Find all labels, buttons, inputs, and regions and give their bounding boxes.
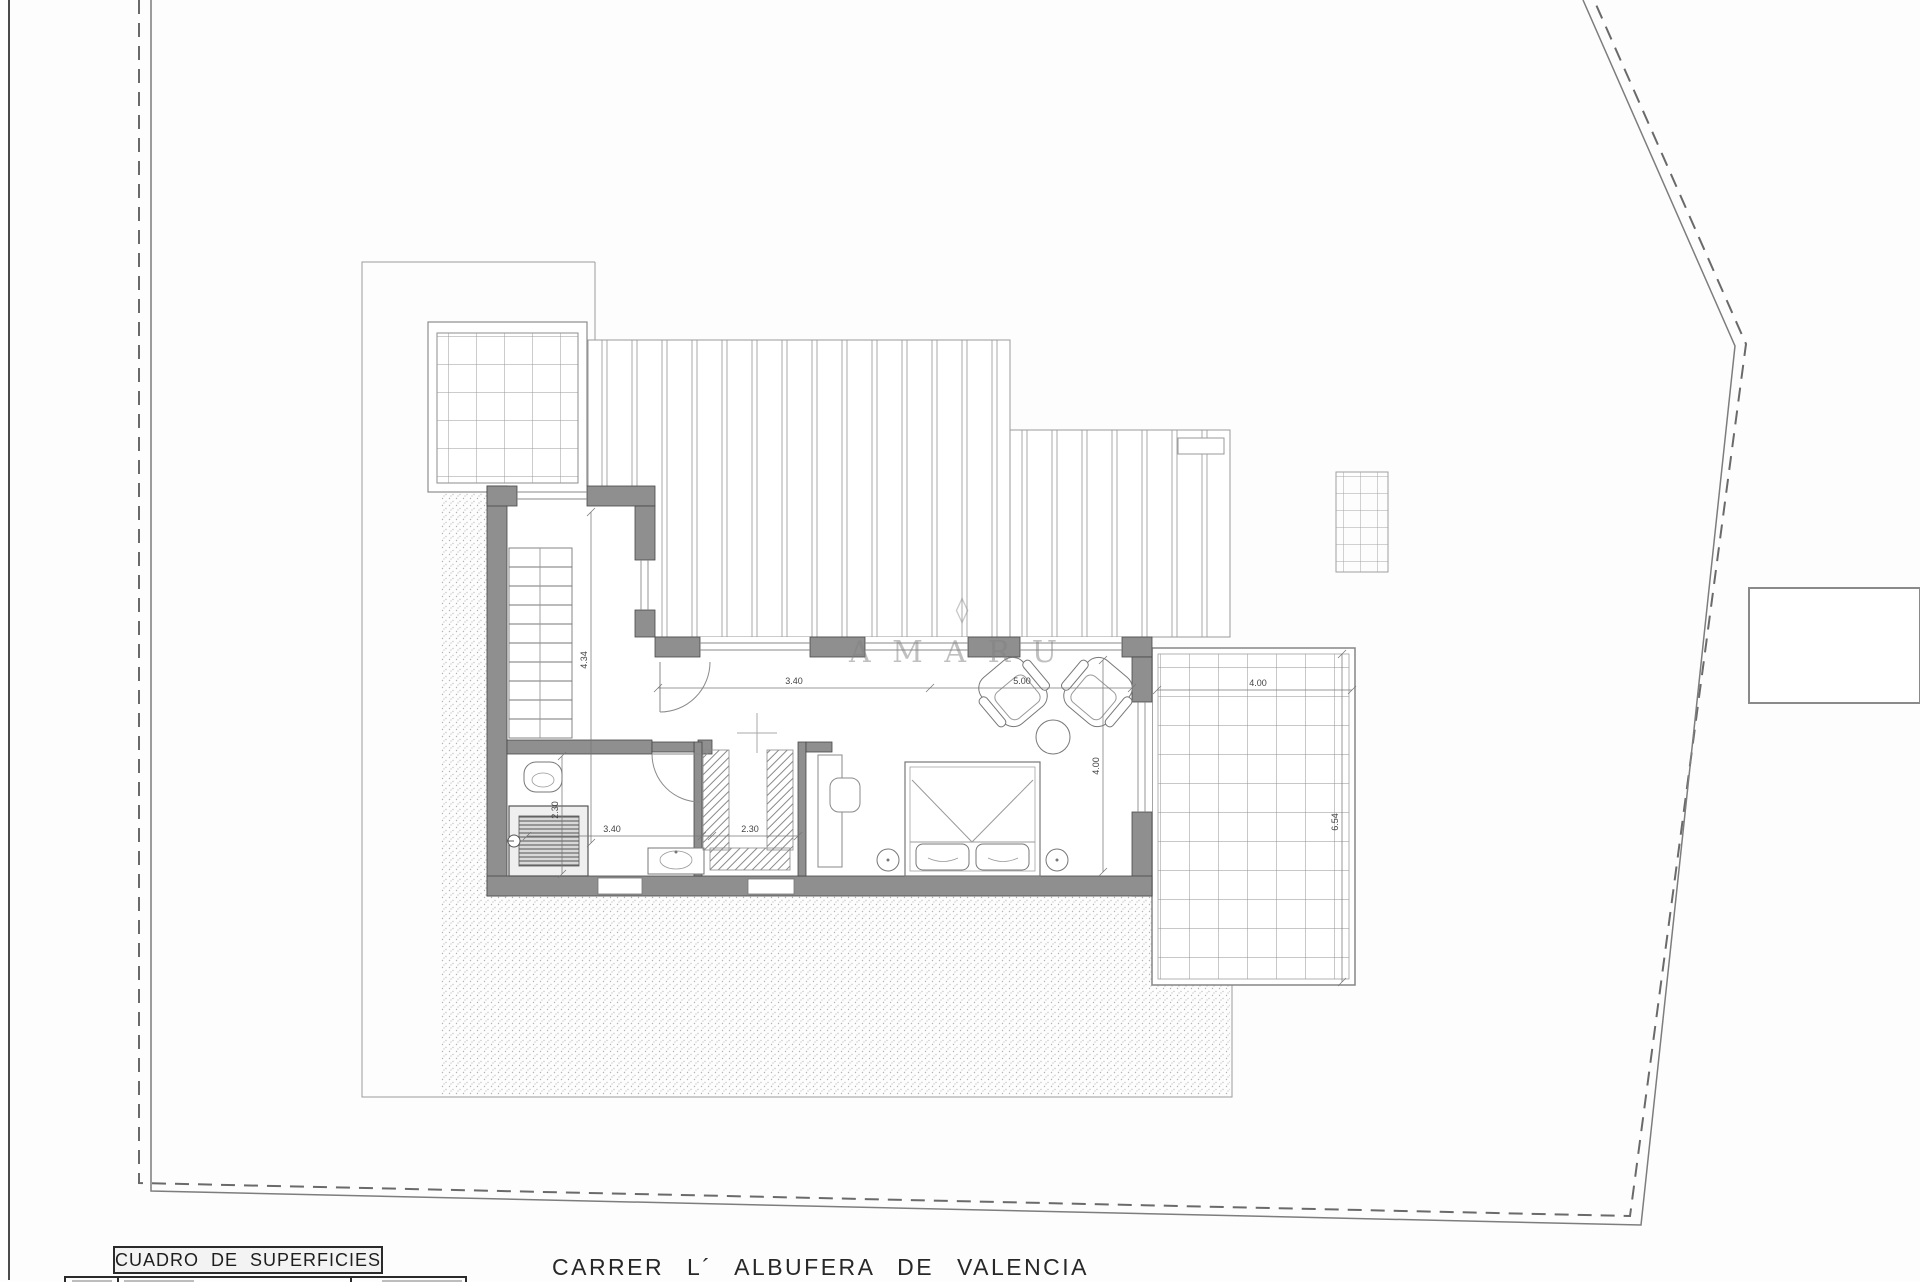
wall-bedroom-top-d [1122, 637, 1152, 657]
ground-strip-left [440, 486, 487, 896]
ground-apron-bottom [440, 896, 1230, 1095]
dim-bedroom-depth: 4.00 [1091, 757, 1101, 775]
wall-bottom [487, 876, 1152, 896]
terrace-grid [1158, 654, 1349, 979]
wall-hall-top-b [587, 486, 655, 506]
wardrobe-bottom [710, 848, 790, 870]
surface-table [64, 1276, 467, 1282]
terrace-right [1152, 648, 1355, 985]
bed [905, 762, 1040, 876]
staircase [509, 548, 572, 738]
pergola-grid [437, 333, 578, 483]
wall-left [487, 486, 507, 896]
bottom-wall-inset-a [598, 878, 642, 894]
side-table [1036, 720, 1070, 754]
pillow-left [916, 844, 969, 870]
dim-bathroom-width: 3.40 [603, 824, 621, 834]
washbasin [648, 848, 704, 874]
dim-living-width: 5.00 [1013, 676, 1031, 686]
surface-table-border [64, 1278, 66, 1282]
wardrobe-right [767, 750, 793, 850]
deck-stripes [588, 340, 1230, 637]
dim-corridor-width: 3.40 [785, 676, 803, 686]
dim-closet-width: 2.30 [741, 824, 759, 834]
floor-plan-drawing: 3.40 5.00 4.00 4.34 3.40 2.30 2.30 4.00 … [0, 0, 1920, 1280]
wall-bathroom-top [507, 740, 652, 754]
wall-bedroom-top-a [655, 637, 700, 657]
deck-area-right [1010, 430, 1230, 637]
desk-chair [830, 778, 860, 812]
watermark-emblem-icon: ◊ [956, 595, 969, 625]
surface-table-border [350, 1278, 352, 1282]
dim-terrace-width: 4.00 [1249, 678, 1267, 688]
wall-closet-right [798, 742, 806, 876]
trellis-small [1336, 472, 1388, 572]
surface-table-border [117, 1278, 119, 1282]
surface-table-border [465, 1278, 467, 1282]
wall-closet-header-a [652, 742, 694, 752]
street-name: CARRER L´ ALBUFERA DE VALENCIA [552, 1254, 1089, 1281]
dim-stair-hall: 4.34 [579, 651, 589, 669]
surface-table-title: CUADRO DE SUPERFICIES [113, 1246, 383, 1274]
wall-hall-right-b [635, 610, 655, 637]
deck-step [1178, 438, 1224, 454]
wall-hall-top-a [487, 486, 517, 506]
wall-right-a [1132, 657, 1152, 702]
toilet [524, 762, 562, 792]
dim-terrace-depth: 6.54 [1330, 813, 1340, 831]
pillow-right [976, 844, 1029, 870]
bottom-wall-inset-b [748, 879, 794, 894]
wall-closet-header-b [806, 742, 832, 752]
floor-plan-sheet: 3.40 5.00 4.00 4.34 3.40 2.30 2.30 4.00 … [0, 0, 1920, 1280]
neighbor-building [1749, 588, 1920, 703]
watermark-text: A M A R U [848, 635, 1063, 670]
wardrobe-left [703, 750, 729, 850]
wall-hall-right-a [635, 506, 655, 560]
dim-bathroom-depth: 2.30 [550, 801, 560, 819]
pergola-top-left [428, 322, 587, 492]
shower [507, 806, 588, 876]
